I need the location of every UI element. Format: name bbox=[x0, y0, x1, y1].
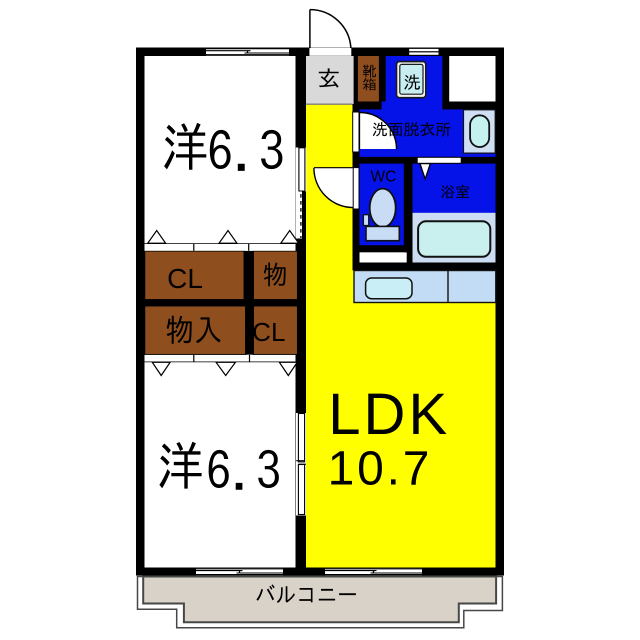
svg-text:LDK: LDK bbox=[328, 382, 450, 447]
svg-text:10.7: 10.7 bbox=[328, 443, 433, 496]
svg-text:CL: CL bbox=[252, 317, 285, 347]
svg-text:CL: CL bbox=[167, 263, 203, 294]
svg-text:WC: WC bbox=[370, 168, 396, 185]
